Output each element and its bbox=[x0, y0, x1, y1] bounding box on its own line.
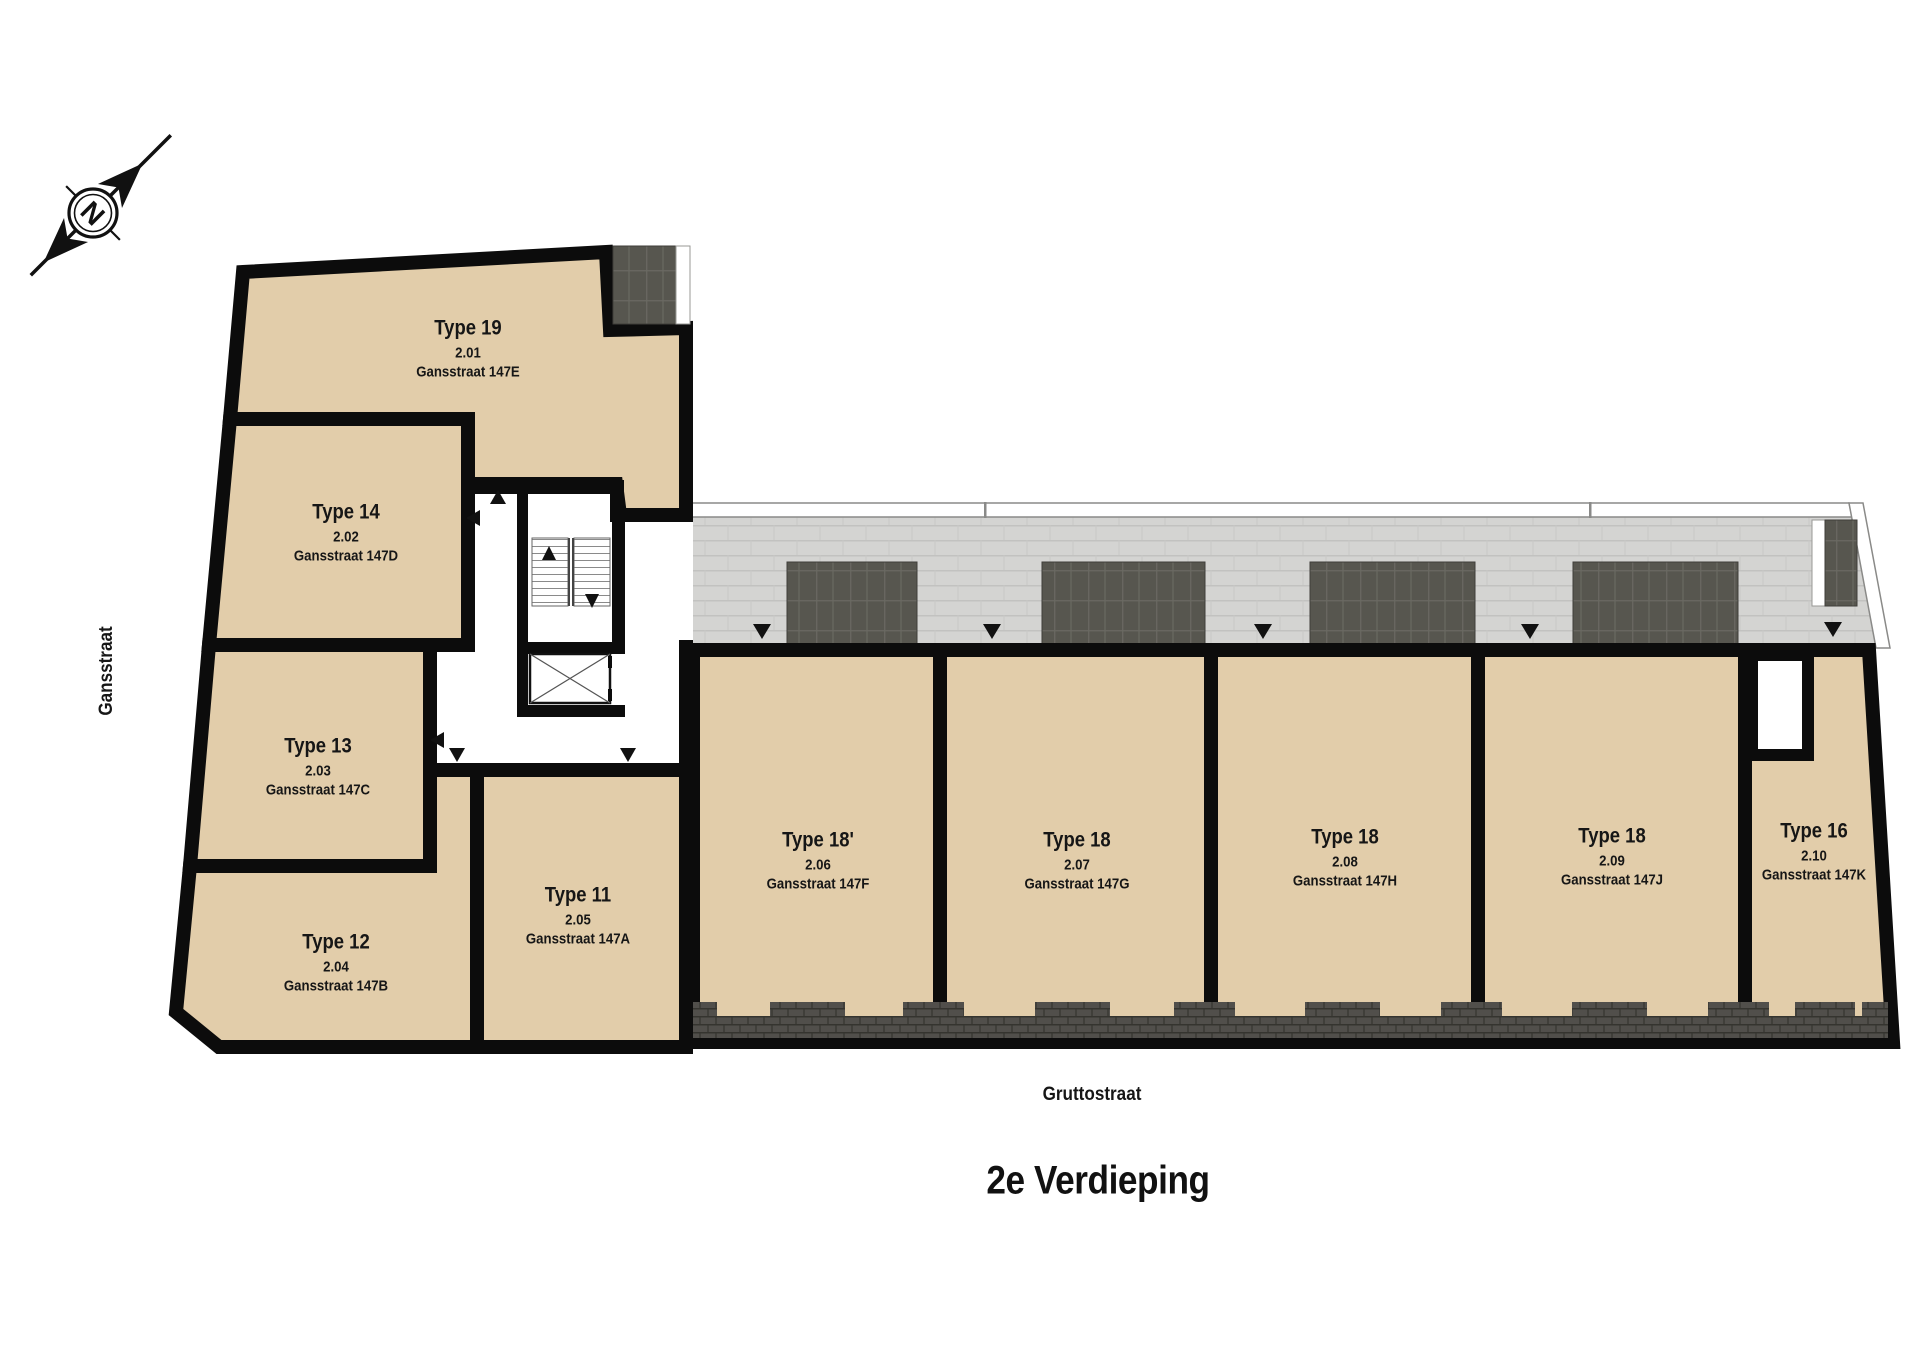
unit-address: Gansstraat 147K bbox=[1762, 867, 1866, 886]
unit-number: 2.04 bbox=[284, 959, 388, 978]
elevator-door-jamb bbox=[608, 656, 612, 668]
street-label-gruttostraat: Gruttostraat bbox=[1043, 1084, 1142, 1106]
floorplan-page: N Type 19 2.01 Gansstraat 147E Type 14 2… bbox=[0, 0, 1920, 1358]
facade-pier bbox=[1211, 1002, 1235, 1038]
unit-number: 2.02 bbox=[294, 529, 398, 548]
facade-pier bbox=[1708, 1002, 1745, 1038]
unit-type: Type 14 bbox=[294, 500, 398, 526]
unit-label-2.06: Type 18' 2.06 Gansstraat 147F bbox=[767, 828, 870, 895]
unit-type: Type 19 bbox=[416, 316, 519, 342]
unit-address: Gansstraat 147A bbox=[526, 931, 630, 950]
unit-type: Type 13 bbox=[266, 734, 370, 760]
unit-number: 2.10 bbox=[1762, 848, 1866, 867]
unit-number: 2.09 bbox=[1561, 853, 1663, 872]
elevator-door-jamb bbox=[608, 689, 612, 701]
unit-type: Type 18 bbox=[1561, 824, 1663, 850]
unit-type: Type 18' bbox=[767, 828, 870, 854]
facade-pier bbox=[770, 1002, 845, 1038]
unit-label-2.09: Type 18 2.09 Gansstraat 147J bbox=[1561, 824, 1663, 891]
unit-address: Gansstraat 147F bbox=[767, 876, 870, 895]
terrace-block bbox=[1042, 562, 1205, 647]
stair-wall bbox=[517, 487, 528, 654]
unit-address: Gansstraat 147D bbox=[294, 548, 398, 567]
stair-rail bbox=[568, 538, 570, 606]
unit-label-2.04: Type 12 2.04 Gansstraat 147B bbox=[284, 930, 388, 997]
facade-pier bbox=[903, 1002, 940, 1038]
facade-pier bbox=[1035, 1002, 1110, 1038]
unit-type: Type 11 bbox=[526, 883, 630, 909]
unit-number: 2.01 bbox=[416, 345, 519, 364]
unit-label-2.05: Type 11 2.05 Gansstraat 147A bbox=[526, 883, 630, 950]
terrace-divider bbox=[1812, 520, 1825, 606]
unit-type: Type 12 bbox=[284, 930, 388, 956]
unit-type: Type 18 bbox=[1025, 828, 1130, 854]
compass: N bbox=[4, 108, 198, 302]
facade-pier bbox=[1478, 1002, 1502, 1038]
unit-number: 2.06 bbox=[767, 857, 870, 876]
unit-address: Gansstraat 147H bbox=[1293, 873, 1397, 892]
facade-pier bbox=[693, 1002, 717, 1038]
floorplan-drawing: N bbox=[0, 0, 1920, 1358]
unit-number: 2.08 bbox=[1293, 854, 1397, 873]
terrace-block bbox=[1573, 562, 1738, 647]
terrace-block bbox=[1825, 520, 1857, 606]
corridor-opening bbox=[676, 522, 693, 640]
facade-pier bbox=[1572, 1002, 1647, 1038]
facade-pier bbox=[1174, 1002, 1211, 1038]
elevator-wall bbox=[517, 705, 625, 717]
unit-address: Gansstraat 147C bbox=[266, 782, 370, 801]
gallery-walkway bbox=[692, 502, 1890, 648]
unit-label-2.08: Type 18 2.08 Gansstraat 147H bbox=[1293, 825, 1397, 892]
floor-title: 2e Verdieping bbox=[986, 1159, 1209, 1204]
unit-label-2.10: Type 16 2.10 Gansstraat 147K bbox=[1762, 819, 1866, 886]
unit-number: 2.03 bbox=[266, 763, 370, 782]
unit-address: Gansstraat 147G bbox=[1025, 876, 1130, 895]
facade-pier bbox=[1795, 1002, 1855, 1038]
walkway-railing bbox=[692, 503, 1852, 517]
railing-post bbox=[1589, 502, 1592, 518]
railing-post bbox=[984, 502, 987, 518]
terrace-block bbox=[613, 246, 676, 324]
stair-rail bbox=[572, 538, 574, 606]
street-label-gansstraat: Gansstraat bbox=[96, 626, 118, 715]
facade-pier bbox=[940, 1002, 964, 1038]
room-2.10-void bbox=[1752, 655, 1808, 755]
terrace-divider bbox=[676, 246, 690, 324]
unit-label-2.03: Type 13 2.03 Gansstraat 147C bbox=[266, 734, 370, 801]
facade-pier bbox=[1862, 1002, 1888, 1038]
unit-number: 2.07 bbox=[1025, 857, 1130, 876]
unit-label-2.01: Type 19 2.01 Gansstraat 147E bbox=[416, 316, 519, 383]
stair-core bbox=[430, 487, 686, 770]
stair-wall bbox=[517, 642, 625, 654]
unit-type: Type 18 bbox=[1293, 825, 1397, 851]
terrace-block bbox=[1310, 562, 1475, 647]
facade-pier bbox=[1745, 1002, 1769, 1038]
facade-pier bbox=[1441, 1002, 1478, 1038]
unit-address: Gansstraat 147B bbox=[284, 978, 388, 997]
stair-wall bbox=[612, 508, 625, 654]
terrace-block bbox=[787, 562, 917, 647]
unit-address: Gansstraat 147E bbox=[416, 364, 519, 383]
unit-label-2.02: Type 14 2.02 Gansstraat 147D bbox=[294, 500, 398, 567]
facade-pier bbox=[1305, 1002, 1380, 1038]
unit-address: Gansstraat 147J bbox=[1561, 872, 1663, 891]
unit-type: Type 16 bbox=[1762, 819, 1866, 845]
unit-label-2.07: Type 18 2.07 Gansstraat 147G bbox=[1025, 828, 1130, 895]
unit-number: 2.05 bbox=[526, 912, 630, 931]
